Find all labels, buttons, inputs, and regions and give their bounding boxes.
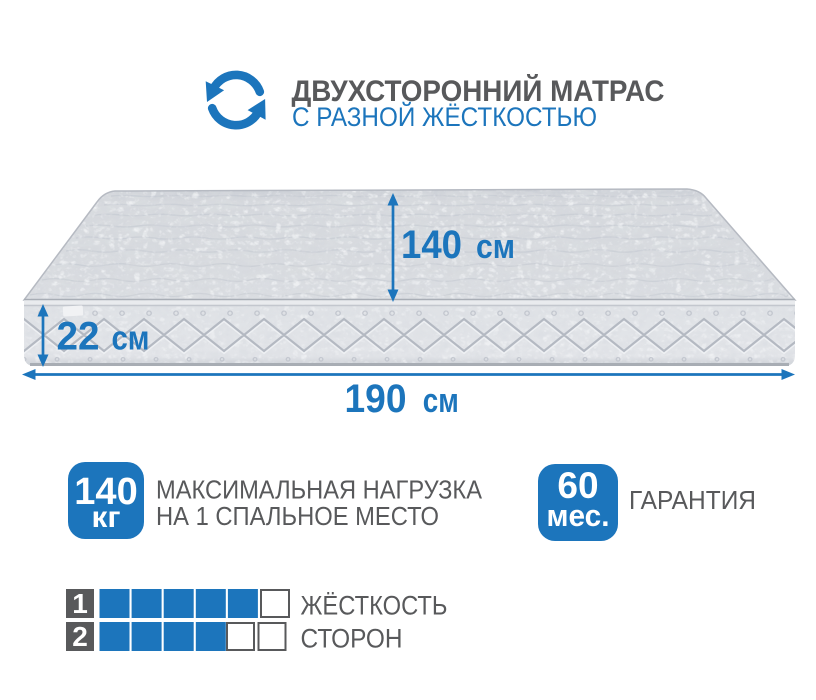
svg-text:НА 1 СПАЛЬНОЕ МЕСТО: НА 1 СПАЛЬНОЕ МЕСТО (156, 501, 439, 531)
svg-text:С РАЗНОЙ ЖЁСТКОСТЬЮ: С РАЗНОЙ ЖЁСТКОСТЬЮ (292, 102, 597, 132)
svg-text:ГАРАНТИЯ: ГАРАНТИЯ (629, 485, 756, 515)
svg-text:мес.: мес. (547, 498, 610, 533)
svg-text:СТОРОН: СТОРОН (301, 624, 403, 654)
svg-text:кг: кг (92, 501, 121, 534)
svg-text:ЖЁСТКОСТЬ: ЖЁСТКОСТЬ (301, 591, 448, 621)
svg-text:190: 190 (345, 377, 407, 421)
svg-text:см: см (476, 228, 515, 266)
svg-text:см: см (423, 382, 459, 420)
svg-text:см: см (112, 320, 150, 358)
svg-text:22: 22 (57, 315, 100, 359)
svg-text:МАКСИМАЛЬНАЯ НАГРУЗКА: МАКСИМАЛЬНАЯ НАГРУЗКА (156, 475, 483, 505)
svg-text:2: 2 (72, 621, 88, 652)
svg-text:1: 1 (72, 588, 88, 619)
svg-text:140: 140 (401, 223, 462, 267)
